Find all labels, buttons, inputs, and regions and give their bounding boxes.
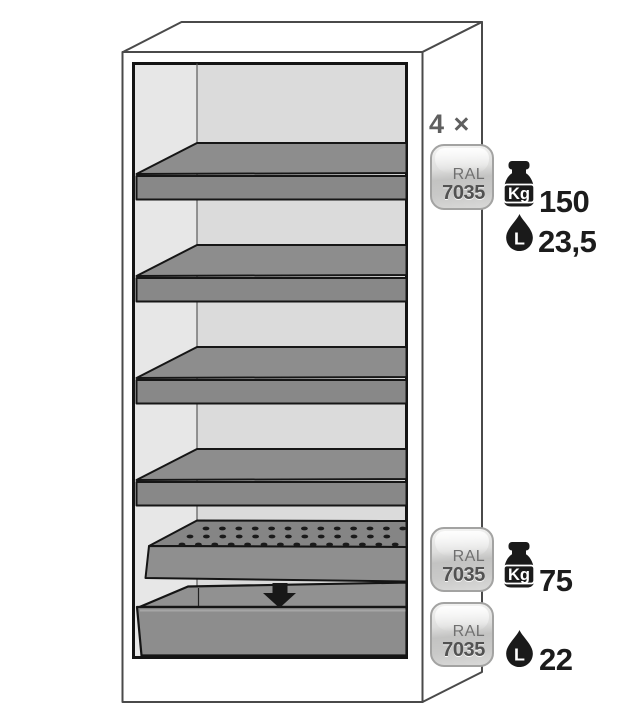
ral-code: 7035	[442, 565, 485, 586]
shelf-front-face	[137, 380, 407, 404]
ral-label: RAL	[453, 624, 485, 640]
ral-code: 7035	[442, 183, 485, 204]
l-unit-label: L	[514, 645, 525, 665]
perforated-insert-front	[146, 546, 407, 582]
shelf-count-label: 4 ×	[429, 111, 470, 138]
kg-unit-label: Kg	[508, 185, 530, 203]
sump-front-face	[137, 607, 407, 656]
ral-7035-badge-insert: RAL 7035	[430, 527, 494, 592]
shelf-load-capacity-value: 150	[539, 186, 589, 217]
shelf-volume-value: 23,5	[538, 226, 596, 257]
shelf-front-face	[137, 482, 407, 506]
perforated-insert-top	[149, 521, 407, 548]
kg-unit-label: Kg	[508, 566, 530, 584]
weight-kg-icon: Kg	[501, 541, 537, 589]
ral-label: RAL	[453, 167, 485, 183]
ral-label: RAL	[453, 549, 485, 565]
cabinet-top-face	[123, 22, 482, 52]
ral-7035-badge-sump: RAL 7035	[430, 602, 494, 667]
safety-cabinet-diagram: 4 × RAL 7035 RAL 7035 RAL 7035 Kg 150 L …	[0, 0, 629, 718]
liquid-drop-icon: L	[505, 213, 534, 252]
l-unit-label: L	[514, 229, 525, 249]
ral-code: 7035	[442, 640, 485, 661]
weight-kg-icon: Kg	[501, 160, 537, 208]
shelf-front-face	[137, 278, 407, 302]
cabinet-illustration	[0, 0, 629, 718]
shelf-front-face	[137, 176, 407, 200]
sump-volume-value: 22	[539, 644, 572, 675]
ral-7035-badge-shelves: RAL 7035	[430, 144, 494, 210]
insert-load-capacity-value: 75	[539, 565, 572, 596]
liquid-drop-icon: L	[505, 629, 534, 668]
